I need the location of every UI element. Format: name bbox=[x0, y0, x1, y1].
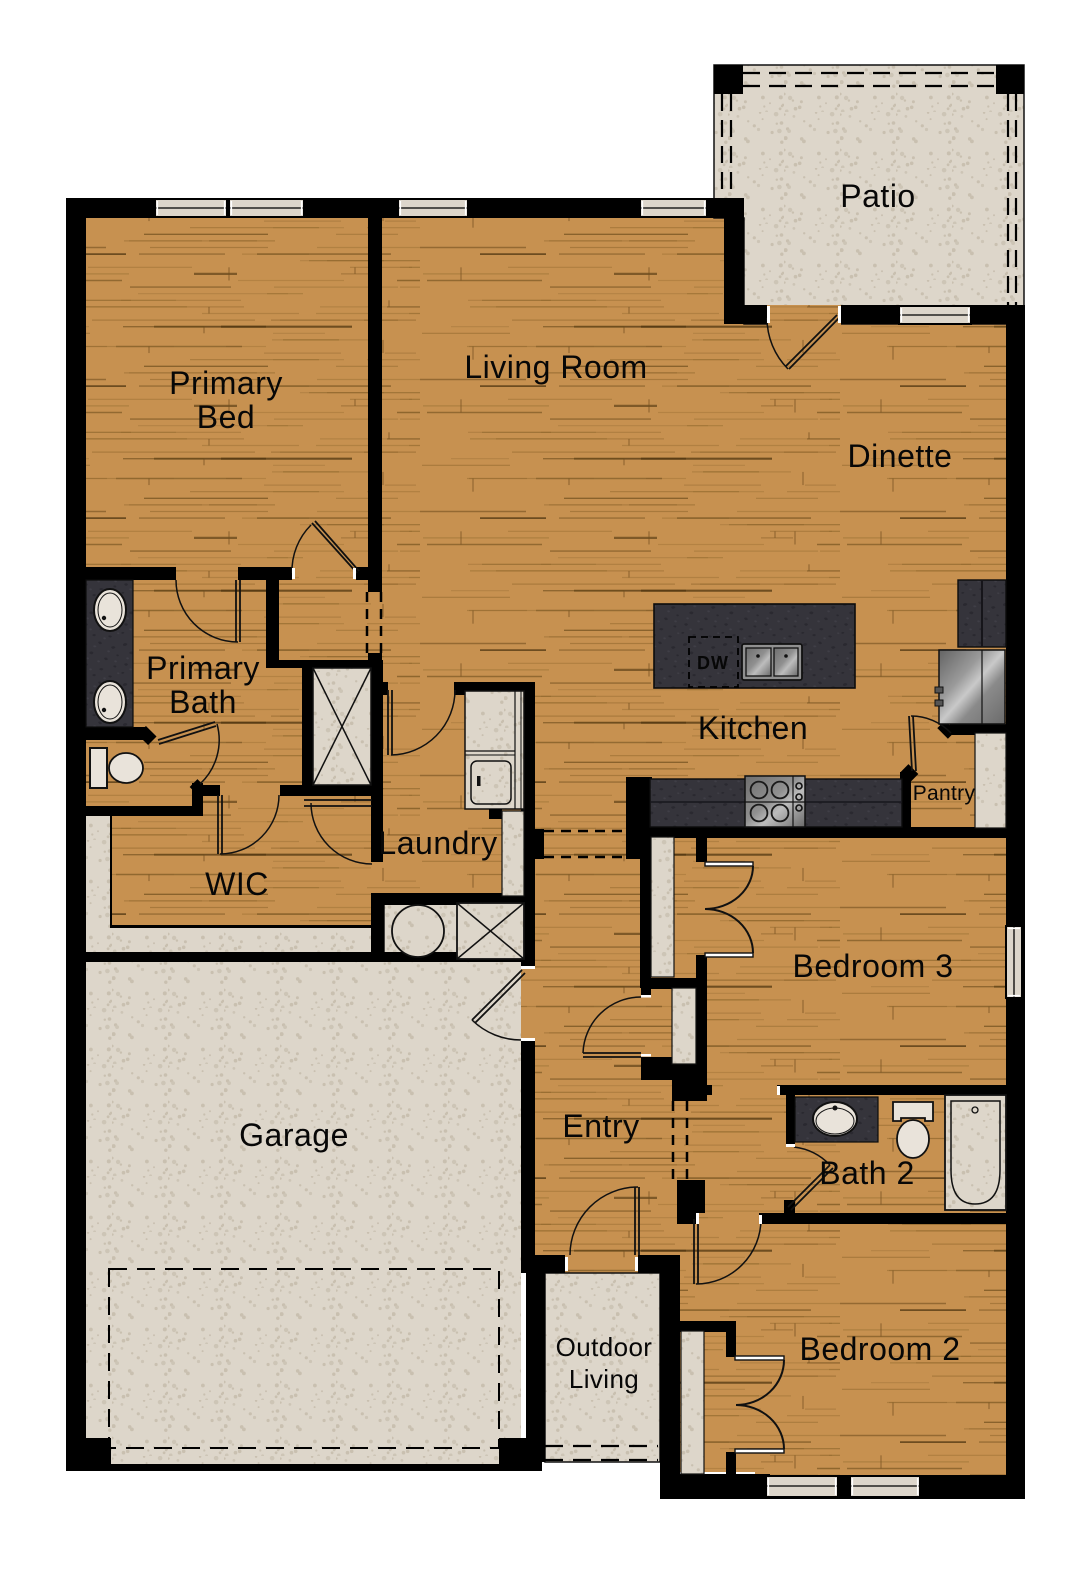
svg-text:Pantry: Pantry bbox=[913, 782, 976, 805]
svg-text:DW: DW bbox=[697, 653, 729, 673]
svg-text:WIC: WIC bbox=[205, 866, 269, 902]
svg-text:Outdoor: Outdoor bbox=[556, 1332, 653, 1362]
svg-text:Bedroom 2: Bedroom 2 bbox=[799, 1331, 960, 1367]
svg-text:Dinette: Dinette bbox=[848, 438, 953, 474]
svg-text:Bedroom 3: Bedroom 3 bbox=[792, 948, 953, 984]
svg-text:Living: Living bbox=[569, 1364, 639, 1394]
svg-text:Primary: Primary bbox=[146, 650, 260, 686]
svg-text:Living Room: Living Room bbox=[464, 349, 647, 385]
svg-text:Primary: Primary bbox=[169, 365, 283, 401]
svg-text:Patio: Patio bbox=[840, 178, 915, 214]
svg-text:Bath: Bath bbox=[169, 684, 237, 720]
svg-text:Entry: Entry bbox=[562, 1108, 639, 1144]
svg-text:Bath 2: Bath 2 bbox=[819, 1155, 915, 1191]
svg-text:Bed: Bed bbox=[197, 399, 255, 435]
svg-text:Garage: Garage bbox=[239, 1117, 349, 1153]
svg-text:Kitchen: Kitchen bbox=[698, 710, 808, 746]
svg-text:Laundry: Laundry bbox=[378, 825, 497, 861]
